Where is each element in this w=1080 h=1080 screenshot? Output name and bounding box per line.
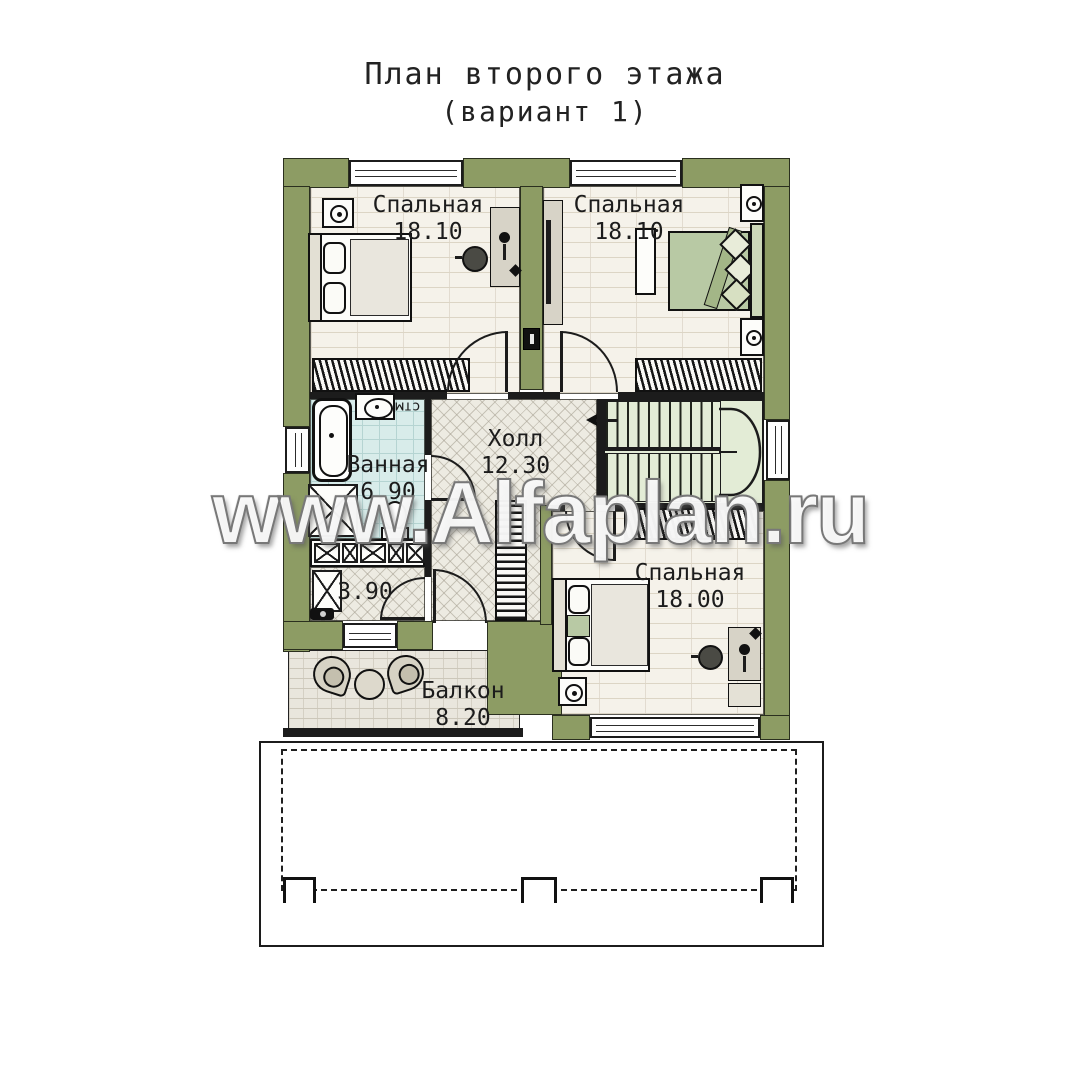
chair-tl: [462, 246, 488, 272]
balcony-table-icon: [354, 669, 385, 700]
switch-box: [523, 328, 540, 350]
bed-mattress: [350, 239, 409, 316]
wall-south-d: [552, 715, 590, 740]
balcony-door-opening: [433, 623, 487, 650]
stairs-mid-rail: [605, 448, 721, 451]
bed-headboard: [310, 235, 322, 320]
wall-int-h2: [508, 392, 560, 399]
room-label-closet: 3.90: [320, 579, 410, 606]
wall-right-upper: [764, 186, 790, 420]
stairs-upper-flight: [605, 401, 721, 448]
sink-icon: [355, 393, 395, 420]
window-south-closet: [343, 623, 397, 648]
floor-plan-page: План второго этажа (вариант 1): [0, 0, 1080, 1080]
chair-armrest: [691, 655, 698, 658]
closet-fixture-icon: [310, 608, 334, 620]
column-mark: [283, 877, 316, 903]
pillow: [568, 585, 590, 614]
nightstand-lamp-icon: [740, 318, 764, 356]
room-label-balcony: Балкон 8.20: [388, 678, 538, 732]
pillow: [323, 242, 346, 274]
wall-south-b: [397, 621, 433, 650]
wall-top-right-pier: [682, 158, 790, 188]
window-top-left: [349, 160, 463, 186]
wall-south-a: [283, 621, 343, 650]
desk-lamp-arm: [503, 244, 506, 260]
window-south-bedroom: [590, 717, 760, 738]
wall-int-v1: [425, 399, 431, 455]
wall-partition-bedrooms: [520, 186, 543, 390]
desk-shelf-br: [728, 683, 761, 707]
nightstand-lamp-icon: [740, 184, 764, 222]
room-label-bedroom-tr: Спальная 18.10: [549, 192, 709, 246]
door-leaf-closet: [380, 617, 425, 620]
bed-headboard: [554, 580, 567, 670]
terrace-dashed-roof-edge: [281, 749, 797, 891]
column-mark: [521, 877, 557, 903]
wall-south-e: [760, 715, 790, 740]
bed-headboard: [750, 223, 764, 318]
door-leaf-balcony: [433, 569, 436, 623]
wall-top-left-pier: [283, 158, 349, 188]
chair-br: [698, 645, 723, 670]
building: стм: [283, 158, 790, 740]
door-leaf-bedroom-tl: [505, 331, 508, 392]
room-label-bedroom-br: Спальная 18.00: [610, 560, 770, 614]
bed-tl: [308, 233, 412, 322]
chair-armrest: [455, 256, 462, 259]
radiator-bedroom-tr: [635, 358, 762, 392]
column-mark: [760, 877, 794, 903]
speaker-icon: [558, 677, 587, 706]
watermark: www.Alfaplan.ru: [0, 462, 1080, 564]
window-top-right: [570, 160, 682, 186]
pillow: [568, 637, 590, 666]
desk-lamp-arm: [743, 656, 746, 672]
washing-machine-label: стм: [393, 398, 423, 415]
wall-left-upper: [283, 186, 310, 427]
stairs-arrow-line: [596, 419, 618, 422]
bed-duvet: [567, 615, 590, 637]
plan-title: План второго этажа (вариант 1): [195, 56, 895, 129]
desk-lamp-icon: [739, 644, 750, 655]
pillow: [323, 282, 346, 314]
plan-title-line2: (вариант 1): [195, 94, 895, 129]
plan-title-line1: План второго этажа: [195, 56, 895, 94]
wall-int-h3: [618, 392, 764, 399]
wall-top-center-pier: [463, 158, 570, 188]
room-label-bedroom-tl: Спальная 18.10: [348, 192, 508, 246]
door-leaf-bedroom-tr: [560, 331, 563, 392]
